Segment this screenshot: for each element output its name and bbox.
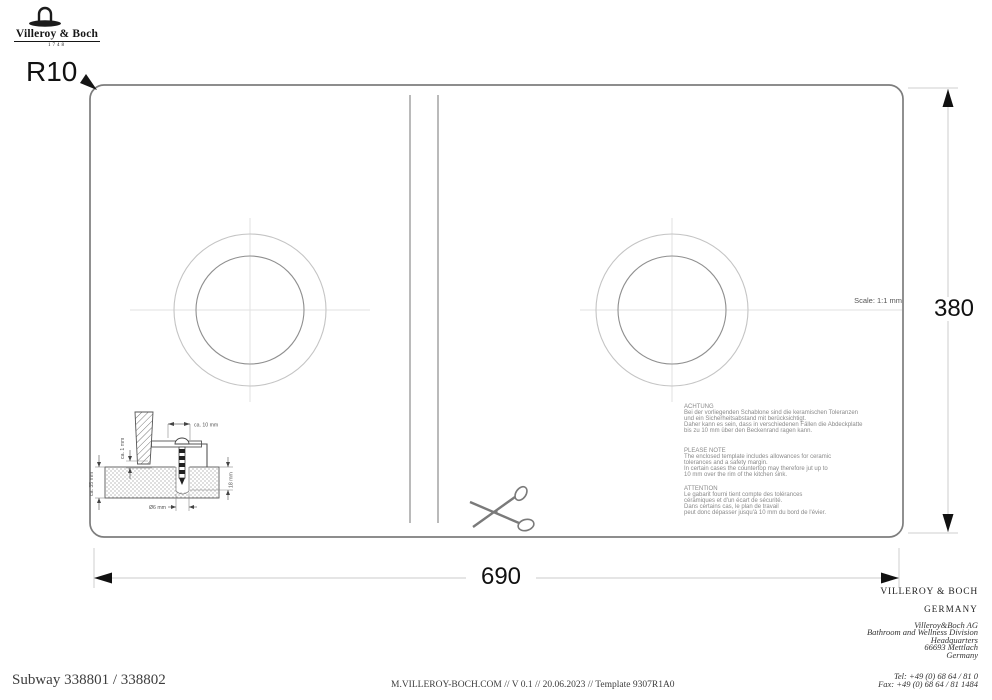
center-divider-lines bbox=[410, 95, 438, 523]
scissors-icon bbox=[470, 484, 535, 532]
note-french-body: Le gabarit fourni tient compte des tolér… bbox=[684, 493, 896, 517]
logo-year: 1748 bbox=[14, 43, 100, 48]
note-french: ATTENTION Le gabarit fourni tient compte… bbox=[684, 487, 896, 517]
corner-radius-label: R10 bbox=[26, 56, 77, 88]
model-number-label: Subway 338801 / 338802 bbox=[12, 672, 166, 689]
note-german: ACHTUNG Bei der vorliegenden Schablone s… bbox=[684, 405, 896, 435]
company-phone-fax: Tel: +49 (0) 68 64 / 81 0 Fax: +49 (0) 6… bbox=[878, 672, 978, 689]
detail-dim-offset-label: ca. 10 mm bbox=[194, 423, 218, 429]
detail-dim-thickness-label: ca. 35 mm bbox=[89, 472, 95, 496]
bowl-circle-left bbox=[130, 218, 370, 402]
detail-dim-hole-label: Ø6 mm bbox=[149, 505, 166, 511]
logo-wordmark: Villeroy & Boch bbox=[14, 28, 100, 42]
country-label: GERMANY bbox=[924, 604, 978, 614]
template-meta-label: M.VILLEROY-BOCH.COM // V 0.1 // 20.06.20… bbox=[391, 680, 675, 690]
height-dimension-label: 380 bbox=[921, 297, 987, 321]
note-english: PLEASE NOTE The enclosed template includ… bbox=[684, 449, 896, 479]
fixing-detail-drawing: ca. 10 mm ca. 1 mm ca. 35 mm 18 bbox=[89, 412, 235, 511]
bowl-circle-right bbox=[580, 218, 902, 402]
drawing-layer: ca. 10 mm ca. 1 mm ca. 35 mm 18 bbox=[0, 0, 992, 700]
company-address: Villeroy&Boch AG Bathroom and Wellness D… bbox=[867, 622, 978, 659]
logo-arch-icon bbox=[29, 8, 61, 27]
scale-label: Scale: 1:1 mm bbox=[828, 296, 902, 305]
company-name-label: VILLEROY & BOCH bbox=[880, 587, 978, 597]
note-english-body: The enclosed template includes allowance… bbox=[684, 455, 896, 479]
detail-dim-gap-label: ca. 1 mm bbox=[120, 438, 126, 459]
width-dimension-label: 690 bbox=[466, 565, 536, 589]
detail-dim-depth-label: 18 mm bbox=[229, 472, 235, 488]
corner-radius-arrow bbox=[80, 74, 97, 90]
note-german-body: Bei der vorliegenden Schablone sind die … bbox=[684, 411, 896, 435]
template-sheet: ca. 10 mm ca. 1 mm ca. 35 mm 18 bbox=[0, 0, 992, 700]
